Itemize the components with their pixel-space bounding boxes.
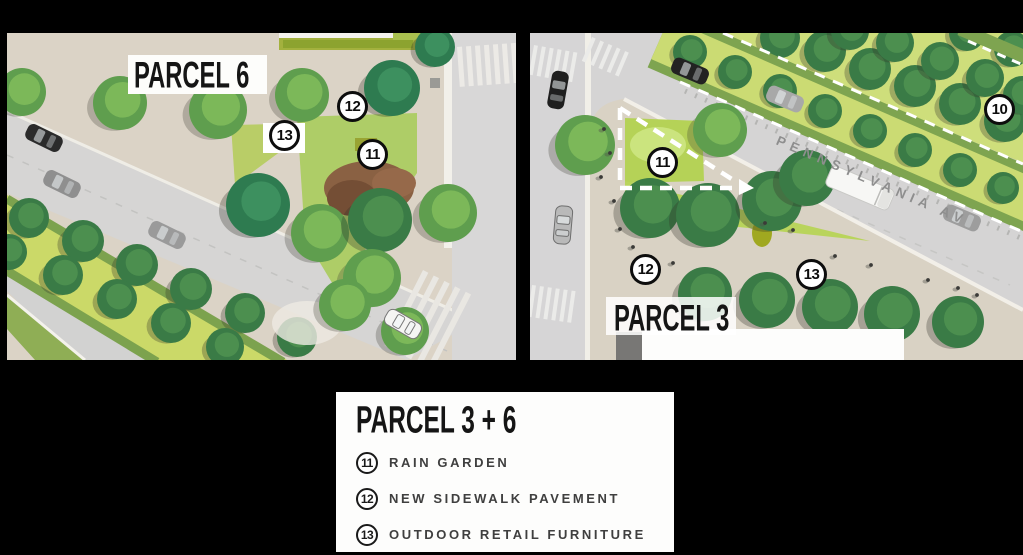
legend: PARCEL 3 + 6 11 RAIN GARDEN 12 NEW SIDEW…	[336, 392, 674, 552]
callout-number: 10	[992, 101, 1008, 118]
callout-number: 13	[277, 127, 293, 144]
callout-number: 13	[804, 266, 820, 283]
callout-10-marker: 10	[984, 94, 1015, 125]
callout-number: 11	[365, 146, 380, 163]
callout-number: 12	[638, 261, 654, 278]
parcel-6-title-text: PARCEL 6	[134, 53, 249, 96]
parcel-3-drawing	[530, 33, 1023, 360]
parcel-6-title: PARCEL 6	[128, 55, 267, 94]
legend-number-badge: 11	[356, 452, 378, 474]
legend-number-badge: 12	[356, 488, 378, 510]
callout-12-marker: 12	[337, 91, 368, 122]
legend-item-outdoor-retail-furniture: 13 OUTDOOR RETAIL FURNITURE	[356, 523, 674, 546]
hedge	[279, 33, 427, 50]
legend-number-badge: 13	[356, 524, 378, 546]
legend-item-label: OUTDOOR RETAIL FURNITURE	[389, 527, 646, 542]
legend-item-label: RAIN GARDEN	[389, 455, 509, 470]
callout-number: 11	[655, 154, 670, 171]
parcel-3-plan: PENNSYLVANIA AV PARCEL 3 10 11 12 13	[530, 33, 1023, 360]
callout-12-marker: 12	[630, 254, 661, 285]
legend-item-label: NEW SIDEWALK PAVEMENT	[389, 491, 620, 506]
callout-11-marker: 11	[357, 139, 388, 170]
callout-number: 12	[345, 98, 361, 115]
legend-title: PARCEL 3 + 6	[356, 402, 674, 438]
parcel-3-title-text: PARCEL 3	[614, 297, 729, 340]
site-plan-figure: PARCEL 6 12 13 11	[0, 0, 1023, 555]
parcel-6-plan: PARCEL 6 12 13 11	[7, 33, 516, 360]
legend-item-new-sidewalk-pavement: 12 NEW SIDEWALK PAVEMENT	[356, 487, 674, 510]
callout-13-marker: 13	[796, 259, 827, 290]
callout-13-marker: 13	[269, 120, 300, 151]
utility-box	[430, 78, 440, 88]
legend-title-text: PARCEL 3 + 6	[356, 398, 516, 442]
car	[553, 205, 573, 244]
legend-item-rain-garden: 11 RAIN GARDEN	[356, 451, 674, 474]
parcel-3-title: PARCEL 3	[608, 299, 746, 337]
callout-11-marker: 11	[647, 147, 678, 178]
